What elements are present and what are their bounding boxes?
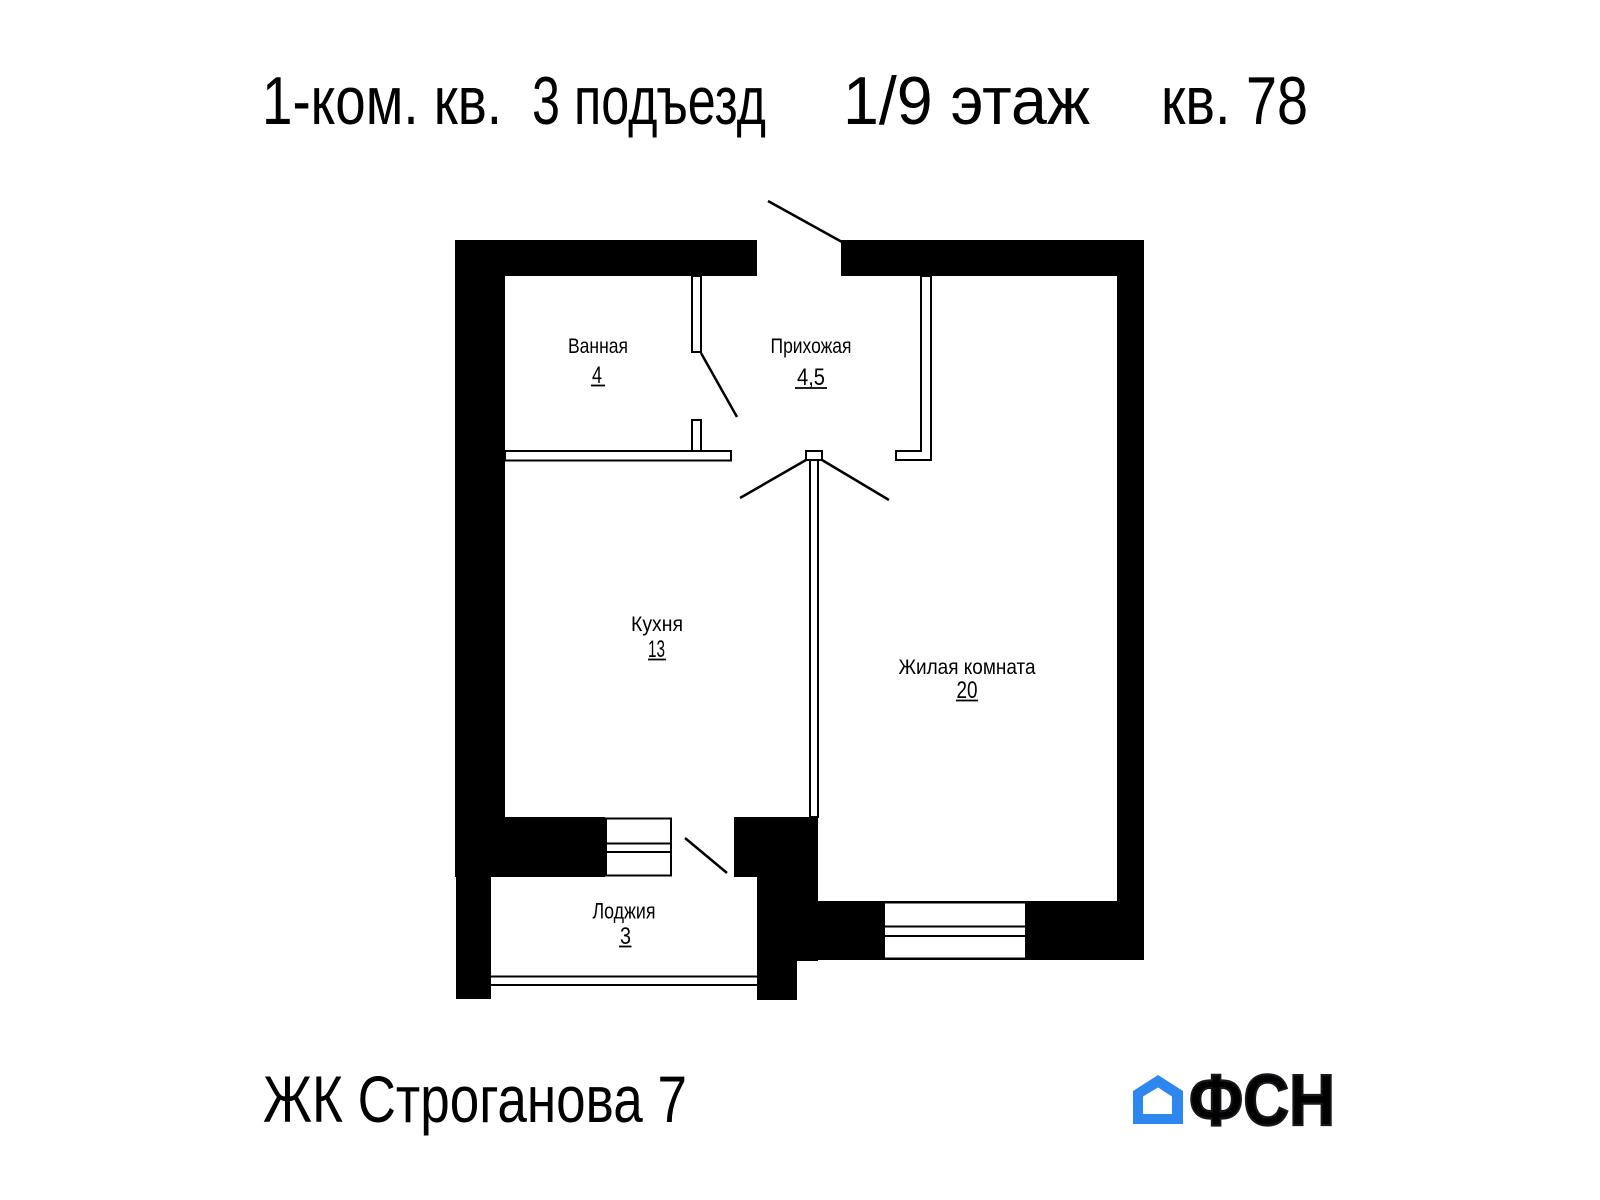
svg-text:Жилая комната: Жилая комната	[899, 656, 1036, 679]
svg-text:Лоджия: Лоджия	[593, 899, 656, 924]
svg-text:Прихожая: Прихожая	[771, 335, 852, 358]
svg-text:3 подъезд: 3 подъезд	[532, 63, 766, 139]
svg-text:1/9 этаж: 1/9 этаж	[843, 63, 1090, 139]
svg-text:1-ком. кв.: 1-ком. кв.	[262, 63, 502, 139]
svg-text:кв. 78: кв. 78	[1161, 63, 1308, 139]
svg-text:ФСН: ФСН	[1189, 1061, 1335, 1141]
svg-text:Ванная: Ванная	[568, 335, 628, 358]
svg-text:ЖК Строганова 7: ЖК Строганова 7	[263, 1062, 687, 1136]
svg-text:Кухня: Кухня	[631, 613, 683, 636]
svg-text:4,5: 4,5	[797, 364, 825, 391]
